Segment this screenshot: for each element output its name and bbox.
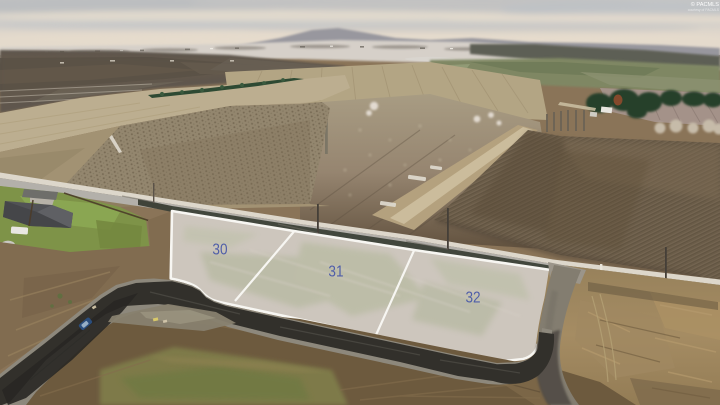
svg-text:courtesy of PACMLS: courtesy of PACMLS (688, 8, 720, 12)
svg-text:31: 31 (328, 264, 343, 281)
svg-text:© PACMLS: © PACMLS (691, 1, 720, 8)
svg-text:32: 32 (465, 290, 480, 307)
svg-text:30: 30 (212, 242, 227, 259)
